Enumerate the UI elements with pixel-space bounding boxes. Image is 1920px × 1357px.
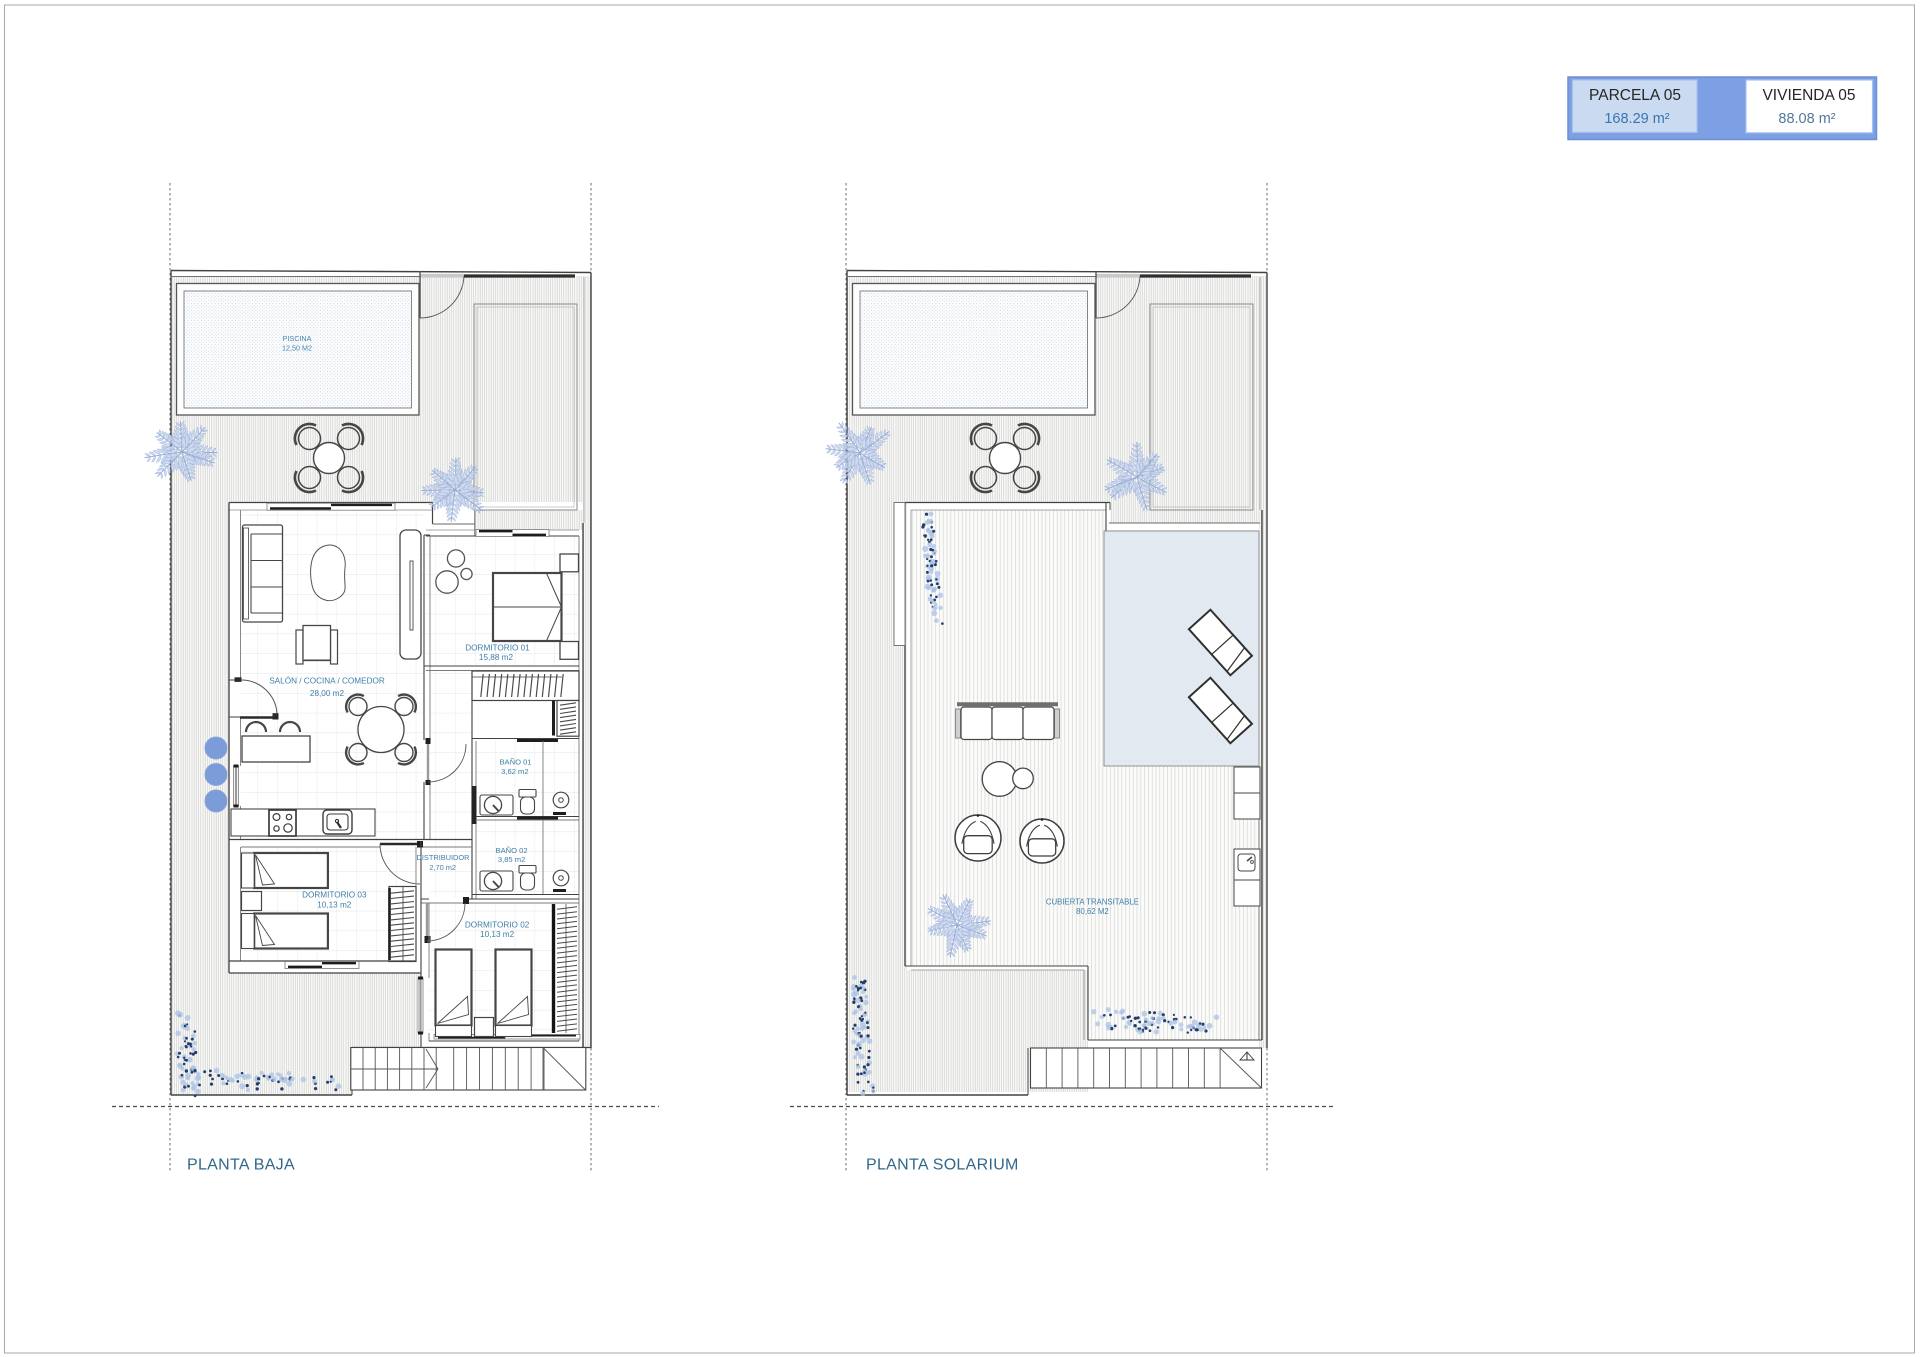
svg-text:DISTRIBUIDOR: DISTRIBUIDOR (417, 853, 470, 862)
svg-text:15,88 m2: 15,88 m2 (479, 653, 514, 662)
svg-text:CUBIERTA TRANSITABLE: CUBIERTA TRANSITABLE (1046, 898, 1139, 907)
svg-text:3,62 m2: 3,62 m2 (501, 767, 528, 776)
svg-text:DORMITORIO 03: DORMITORIO 03 (302, 891, 367, 900)
svg-text:3,85 m2: 3,85 m2 (498, 855, 525, 864)
svg-text:DORMITORIO 01: DORMITORIO 01 (465, 644, 530, 653)
svg-text:VIVIENDA 05: VIVIENDA 05 (1762, 87, 1855, 104)
svg-text:PLANTA BAJA: PLANTA BAJA (187, 1157, 295, 1174)
svg-text:PISCINA: PISCINA (283, 334, 312, 343)
svg-text:28,00 m2: 28,00 m2 (310, 689, 345, 698)
svg-text:DORMITORIO 02: DORMITORIO 02 (465, 921, 530, 930)
svg-text:2,70 m2: 2,70 m2 (429, 863, 456, 872)
svg-text:10,13 m2: 10,13 m2 (317, 901, 352, 910)
svg-text:10,13 m2: 10,13 m2 (480, 930, 515, 939)
svg-text:BAÑO 01: BAÑO 01 (499, 758, 531, 767)
svg-text:88.08 m²: 88.08 m² (1778, 111, 1835, 127)
svg-text:PLANTA SOLARIUM: PLANTA SOLARIUM (866, 1157, 1019, 1174)
svg-text:SALÓN / COCINA / COMEDOR: SALÓN / COCINA / COMEDOR (269, 676, 385, 686)
svg-text:80,62 M2: 80,62 M2 (1076, 907, 1109, 916)
svg-text:BAÑO 02: BAÑO 02 (496, 846, 528, 855)
svg-text:168.29 m²: 168.29 m² (1604, 111, 1669, 127)
svg-text:12,50 M2: 12,50 M2 (282, 344, 312, 353)
svg-text:PARCELA 05: PARCELA 05 (1589, 87, 1681, 104)
